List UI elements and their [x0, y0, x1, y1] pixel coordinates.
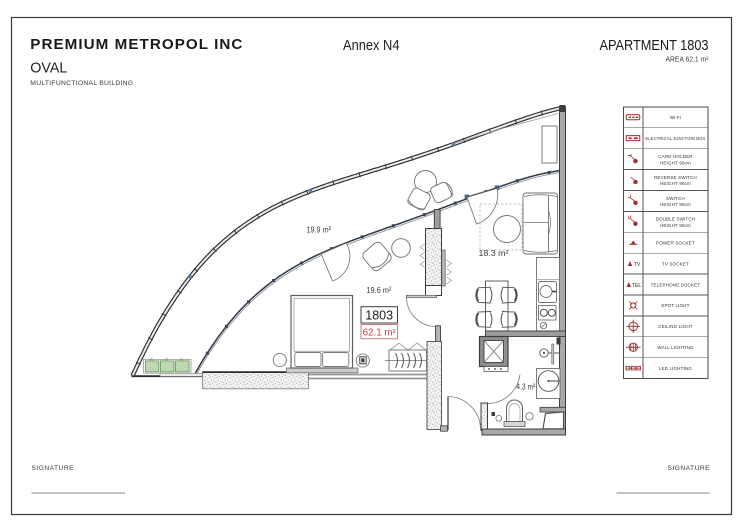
svg-text:HEIGHT 90cm: HEIGHT 90cm: [660, 223, 691, 228]
svg-text:HEIGHT 90cm: HEIGHT 90cm: [660, 160, 691, 165]
svg-text:LED LIGHTING: LED LIGHTING: [659, 366, 692, 371]
svg-text:AREA 62.1 m²: AREA 62.1 m²: [666, 57, 710, 64]
svg-text:APARTMENT 1803: APARTMENT 1803: [600, 38, 709, 54]
svg-text:WALL LIGHTING: WALL LIGHTING: [657, 345, 694, 350]
svg-text:Wi-Fi: Wi-Fi: [670, 115, 681, 120]
svg-text:CARD HOLDER: CARD HOLDER: [658, 154, 693, 159]
svg-text:DOUBLE SWITCH: DOUBLE SWITCH: [656, 217, 696, 222]
svg-text:TV SOCKET: TV SOCKET: [662, 261, 689, 266]
svg-text:SIGNATURE: SIGNATURE: [32, 465, 75, 472]
svg-text:HEIGHT 90cm: HEIGHT 90cm: [660, 181, 691, 186]
svg-text:1803: 1803: [365, 309, 393, 323]
svg-text:POWER SOCKET: POWER SOCKET: [656, 241, 695, 246]
svg-text:Annex N4: Annex N4: [343, 38, 400, 54]
svg-text:HEIGHT 90cm: HEIGHT 90cm: [660, 202, 691, 207]
svg-text:PREMIUM METROPOL INC: PREMIUM METROPOL INC: [30, 36, 243, 53]
svg-text:4.3 m²: 4.3 m²: [516, 382, 535, 392]
svg-text:18.3 m²: 18.3 m²: [479, 248, 509, 258]
svg-text:ELECTRICAL JUNCTION BOX: ELECTRICAL JUNCTION BOX: [645, 136, 705, 141]
svg-text:CEILING LIGHT: CEILING LIGHT: [658, 324, 693, 329]
svg-text:MULTIFUNCTIONAL BUILDING: MULTIFUNCTIONAL BUILDING: [30, 80, 133, 87]
svg-text:TEL: TEL: [632, 283, 641, 289]
svg-text:OVAL: OVAL: [30, 60, 67, 77]
svg-text:62.1 m²: 62.1 m²: [363, 328, 397, 339]
svg-text:19.9 m²: 19.9 m²: [307, 225, 332, 235]
svg-text:SWITCH: SWITCH: [666, 196, 685, 201]
svg-text:REVERSE SWITCH: REVERSE SWITCH: [654, 175, 697, 180]
svg-text:19.6 m²: 19.6 m²: [366, 285, 391, 295]
svg-text:TV: TV: [634, 262, 641, 268]
svg-text:SPOT LIGHT: SPOT LIGHT: [661, 303, 689, 308]
svg-text:SIGNATURE: SIGNATURE: [668, 465, 711, 472]
svg-text:TELEPHONE SOCKET: TELEPHONE SOCKET: [651, 282, 701, 287]
